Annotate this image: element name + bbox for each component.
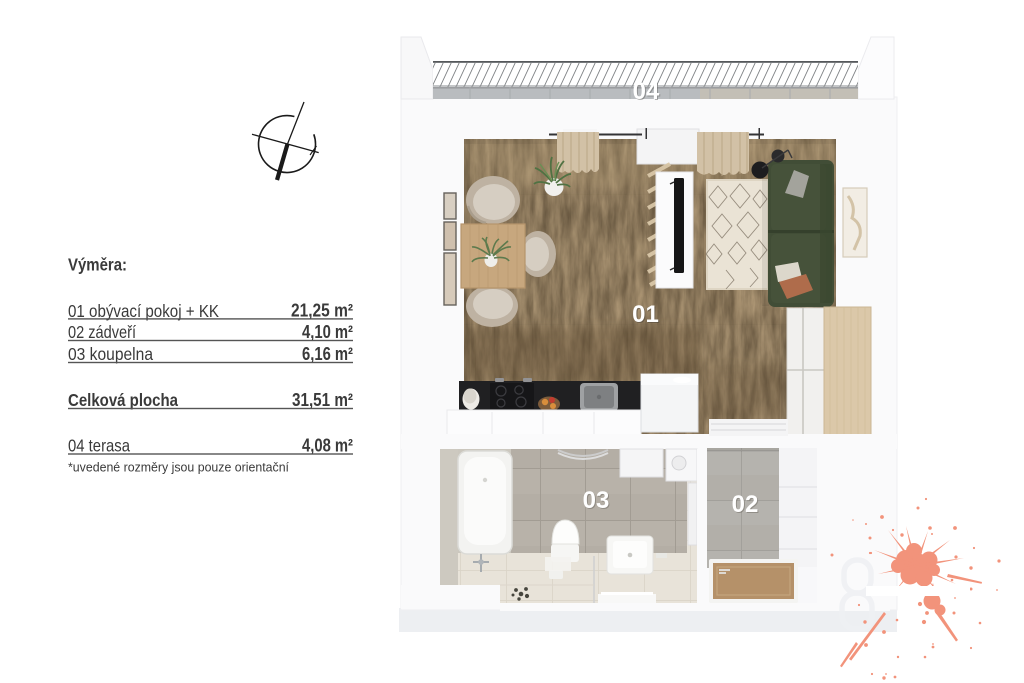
svg-text:*uvedené rozměry jsou pouze or: *uvedené rozměry jsou pouze orientační bbox=[68, 460, 289, 475]
svg-text:03: 03 bbox=[583, 487, 610, 514]
svg-text:4,08 m²: 4,08 m² bbox=[302, 436, 353, 456]
svg-text:01 obývací pokoj + KK: 01 obývací pokoj + KK bbox=[68, 301, 219, 321]
svg-text:01: 01 bbox=[632, 301, 659, 328]
svg-text:Výměra:: Výměra: bbox=[68, 255, 127, 275]
svg-text:Celková plocha: Celková plocha bbox=[68, 390, 178, 410]
svg-text:31,51 m²: 31,51 m² bbox=[292, 390, 353, 410]
svg-text:4,10 m²: 4,10 m² bbox=[302, 322, 353, 342]
svg-text:02 zádveří: 02 zádveří bbox=[68, 322, 136, 342]
svg-text:21,25 m²: 21,25 m² bbox=[291, 301, 353, 321]
svg-text:02: 02 bbox=[732, 491, 759, 518]
svg-text:6,16 m²: 6,16 m² bbox=[302, 344, 353, 364]
svg-text:04: 04 bbox=[633, 78, 660, 105]
svg-text:04 terasa: 04 terasa bbox=[68, 436, 130, 456]
svg-text:03 koupelna: 03 koupelna bbox=[68, 344, 153, 364]
